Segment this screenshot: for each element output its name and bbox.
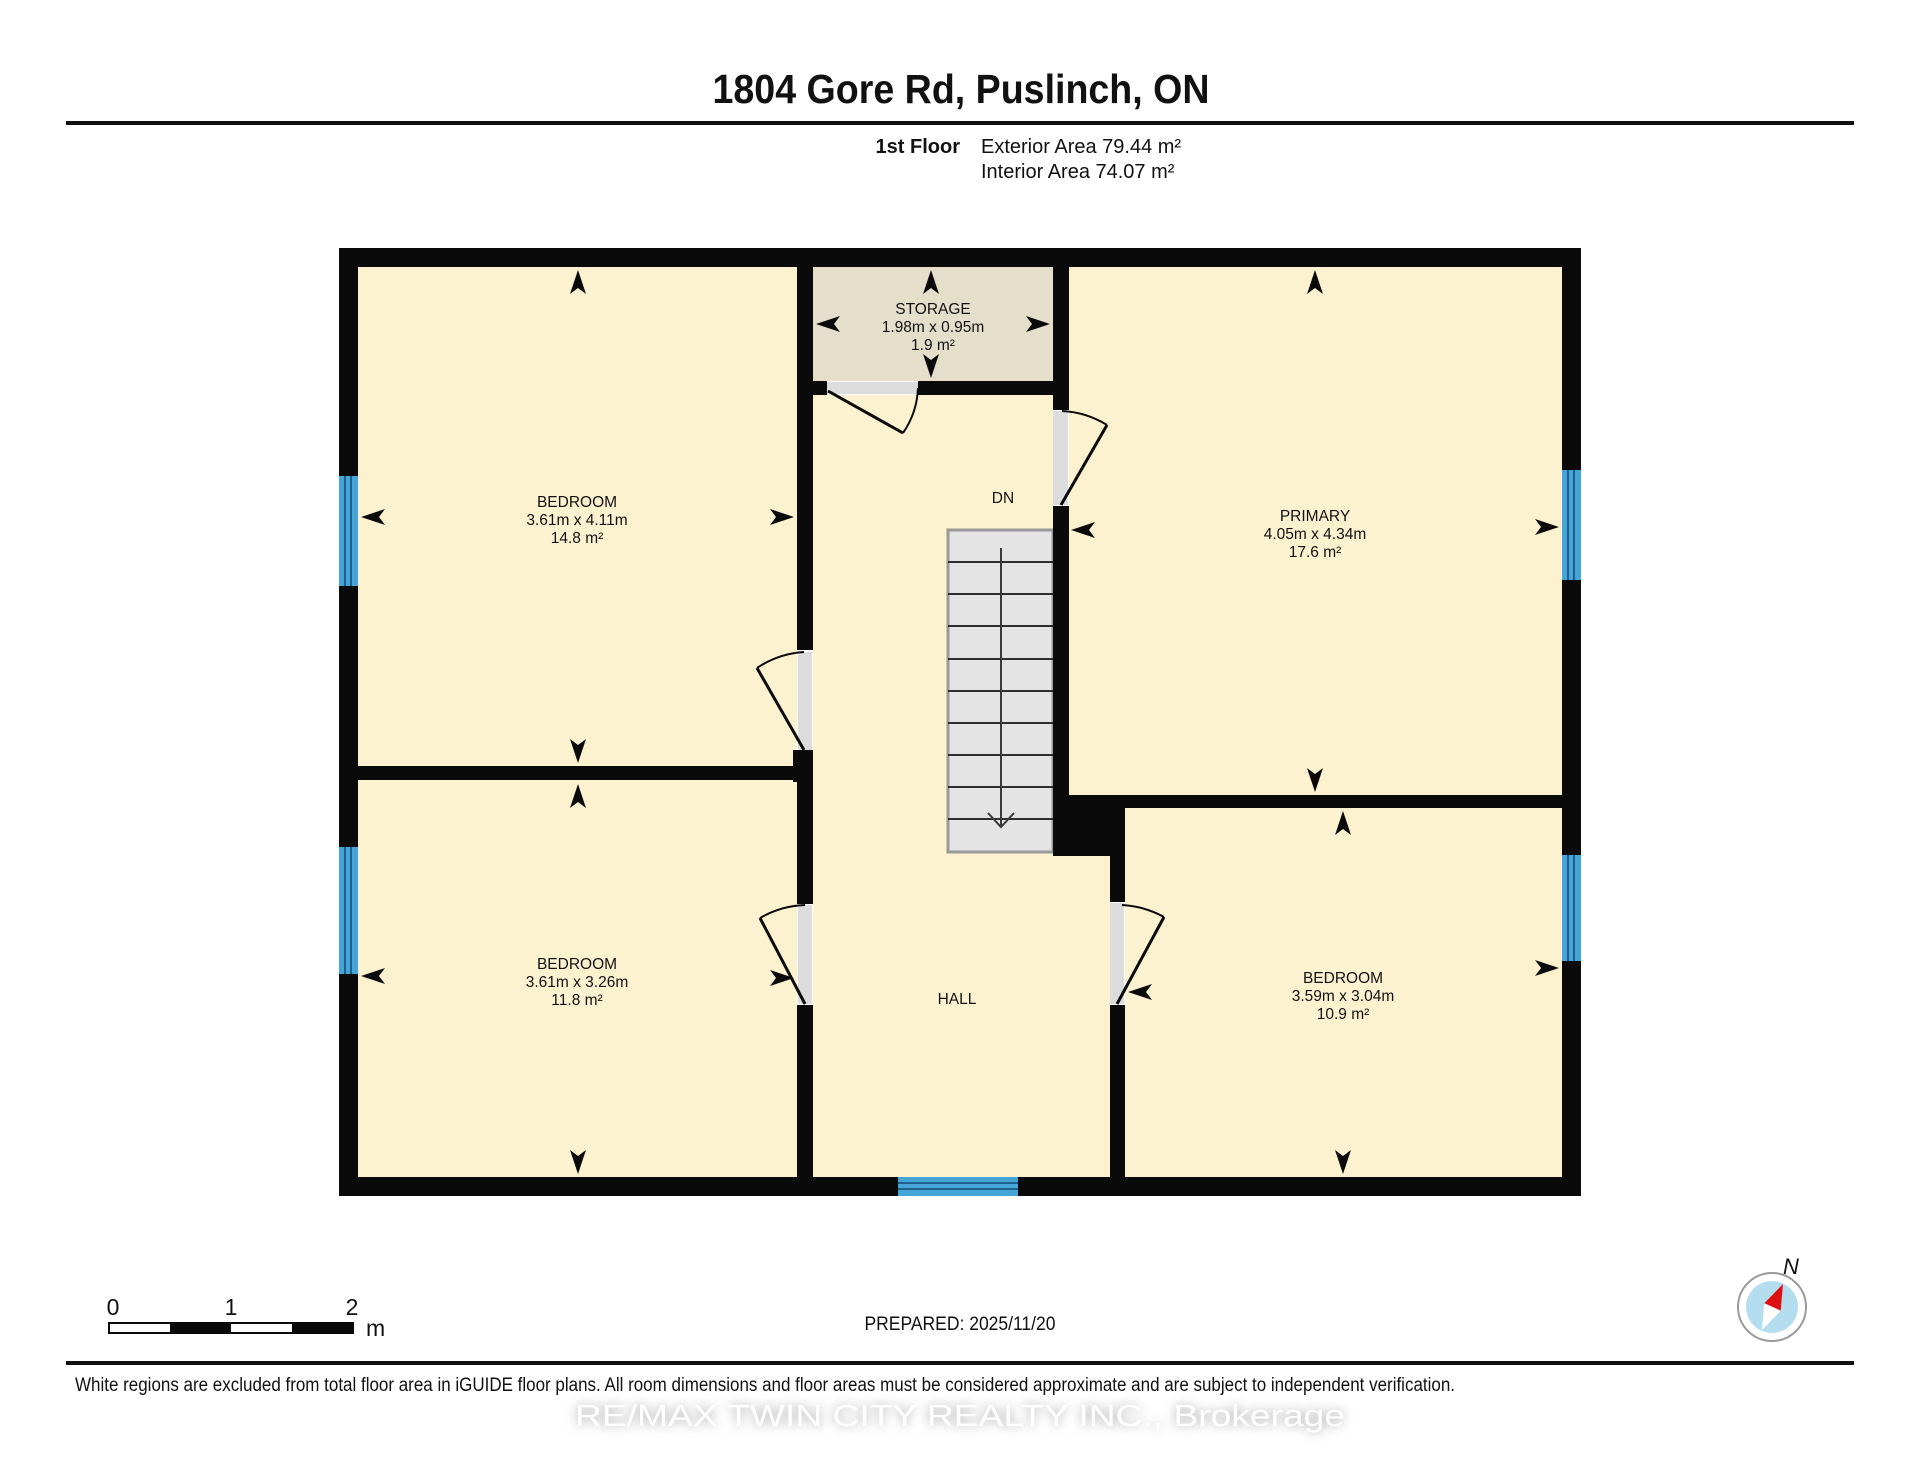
svg-text:1.98m x 0.95m: 1.98m x 0.95m [882, 319, 985, 336]
svg-text:White regions are excluded fro: White regions are excluded from total fl… [75, 1375, 1455, 1396]
svg-text:3.61m x 3.26m: 3.61m x 3.26m [526, 974, 629, 991]
svg-text:BEDROOM: BEDROOM [537, 956, 617, 973]
svg-text:3.59m x 3.04m: 3.59m x 3.04m [1292, 988, 1395, 1005]
svg-text:0: 0 [107, 1294, 120, 1320]
svg-text:STORAGE: STORAGE [895, 301, 971, 318]
svg-text:3.61m x 4.11m: 3.61m x 4.11m [526, 512, 627, 529]
svg-text:10.9 m²: 10.9 m² [1317, 1006, 1370, 1023]
svg-text:BEDROOM: BEDROOM [537, 494, 617, 511]
svg-text:DN: DN [992, 490, 1014, 507]
svg-text:m: m [366, 1315, 385, 1341]
svg-text:Exterior Area 79.44 m²: Exterior Area 79.44 m² [981, 136, 1181, 158]
svg-text:4.05m x 4.34m: 4.05m x 4.34m [1264, 526, 1367, 543]
svg-text:Interior Area 74.07 m²: Interior Area 74.07 m² [981, 161, 1175, 183]
svg-text:PREPARED: 2025/11/20: PREPARED: 2025/11/20 [865, 1314, 1056, 1335]
svg-text:BEDROOM: BEDROOM [1303, 970, 1383, 987]
svg-text:2: 2 [346, 1294, 359, 1320]
svg-text:1st Floor: 1st Floor [876, 136, 961, 158]
svg-text:HALL: HALL [938, 991, 977, 1008]
svg-text:PRIMARY: PRIMARY [1280, 508, 1350, 525]
svg-text:11.8 m²: 11.8 m² [551, 992, 602, 1009]
svg-text:1804 Gore Rd, Puslinch, ON: 1804 Gore Rd, Puslinch, ON [713, 66, 1210, 112]
svg-text:RE/MAX TWIN CITY REALTY INC.,: RE/MAX TWIN CITY REALTY INC., Brokerage [575, 1398, 1345, 1433]
svg-text:1.9 m²: 1.9 m² [911, 337, 955, 354]
svg-text:N: N [1783, 1254, 1799, 1279]
svg-text:1: 1 [225, 1294, 238, 1320]
svg-text:14.8 m²: 14.8 m² [551, 530, 604, 547]
svg-text:17.6 m²: 17.6 m² [1289, 544, 1342, 561]
